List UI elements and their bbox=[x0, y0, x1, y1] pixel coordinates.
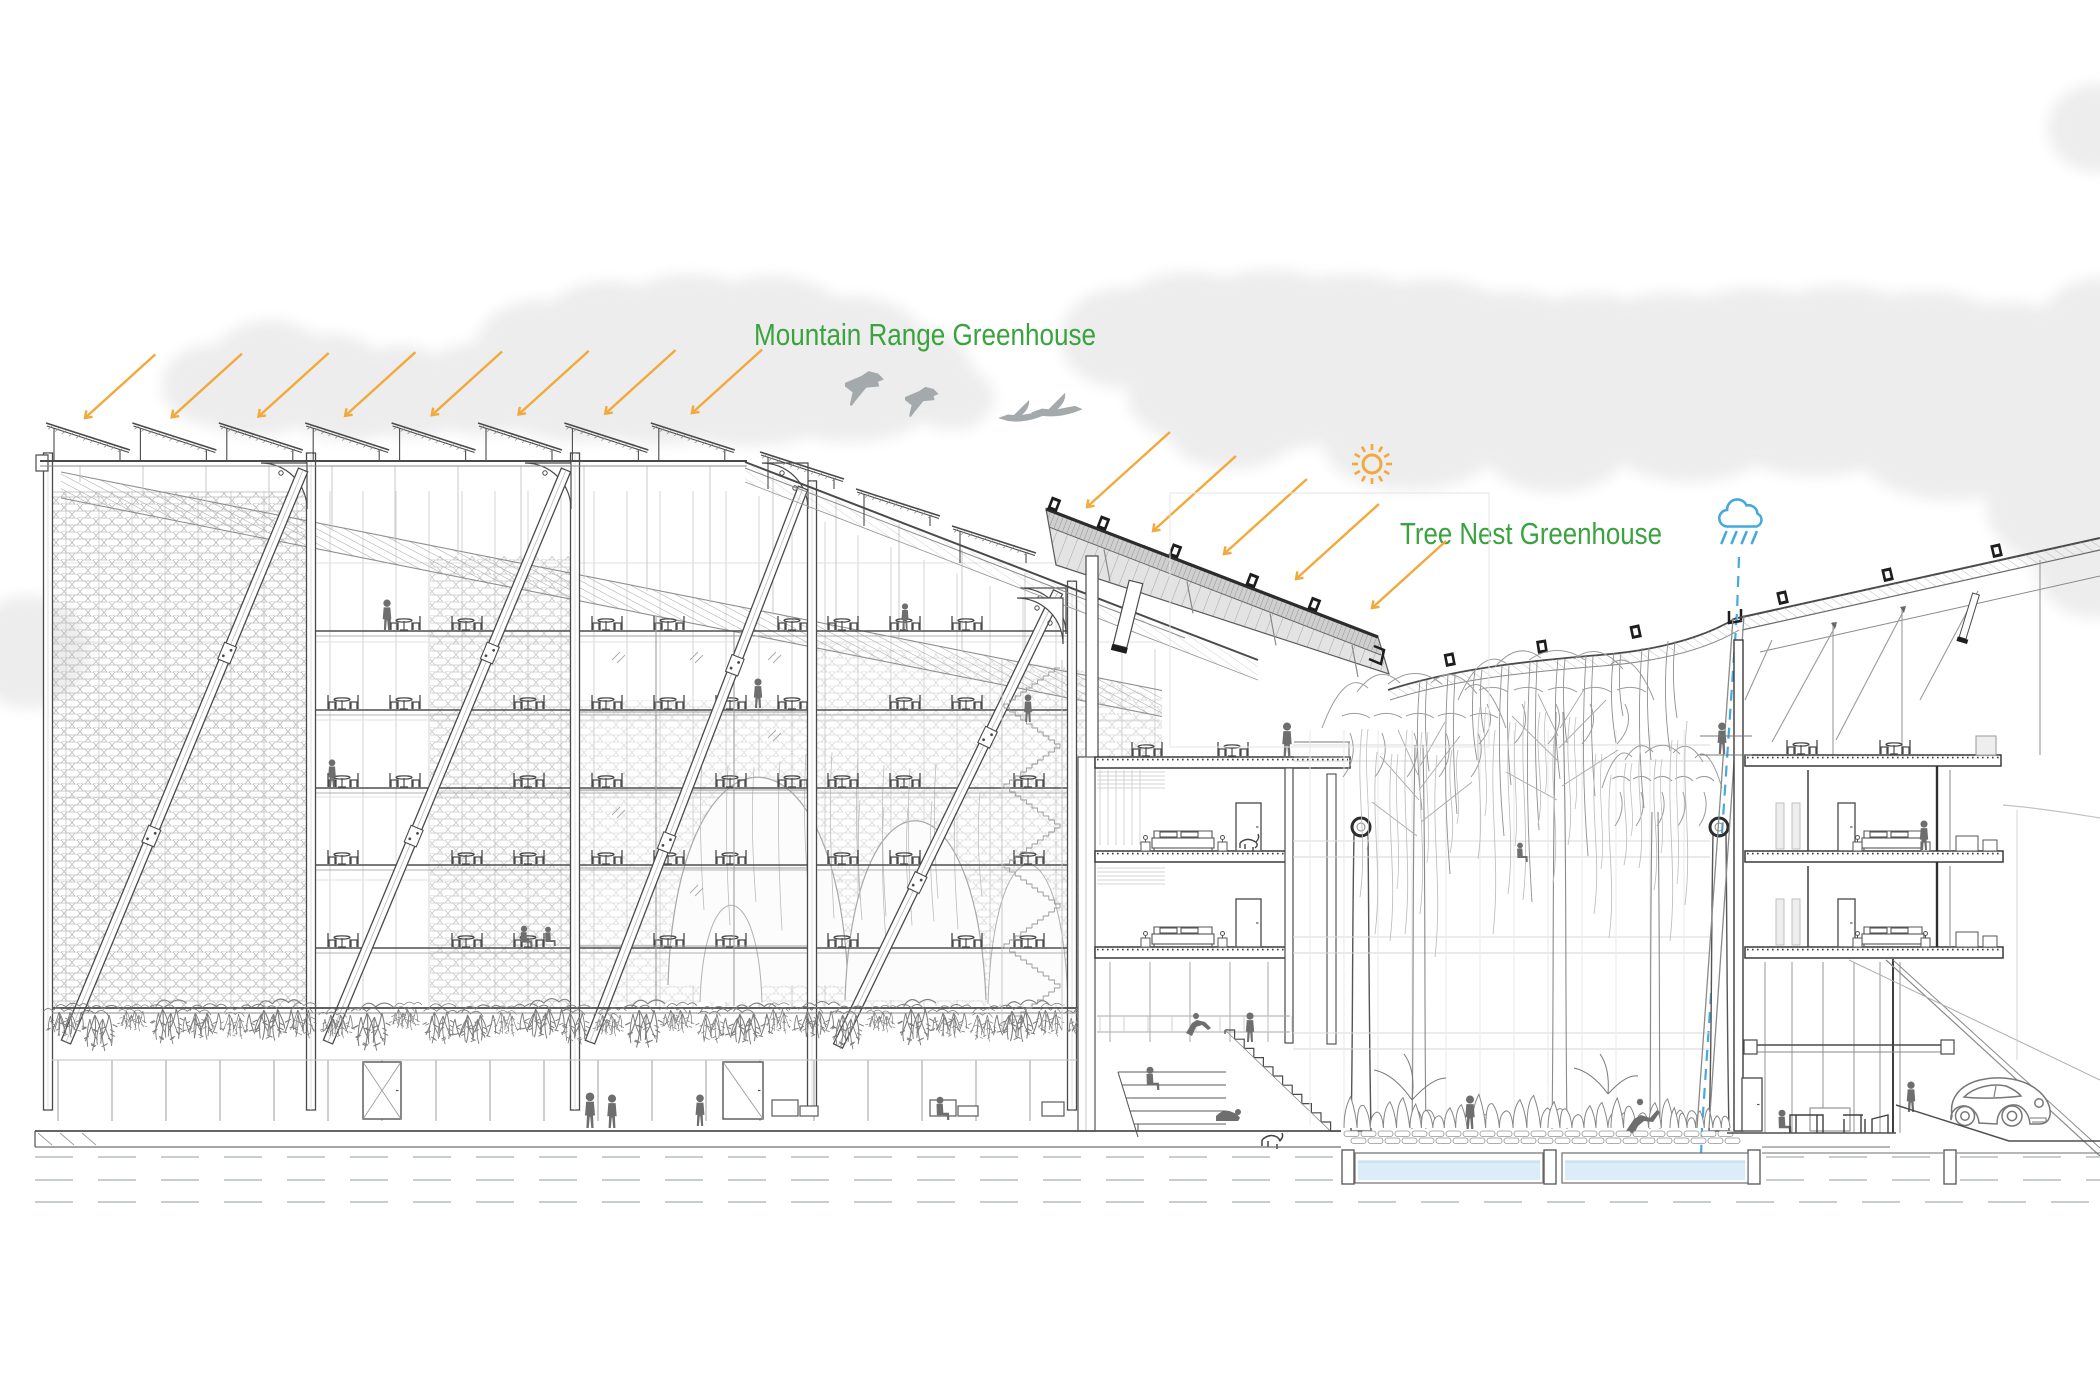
svg-text:Mountain Range Greenhouse: Mountain Range Greenhouse bbox=[754, 318, 1096, 352]
